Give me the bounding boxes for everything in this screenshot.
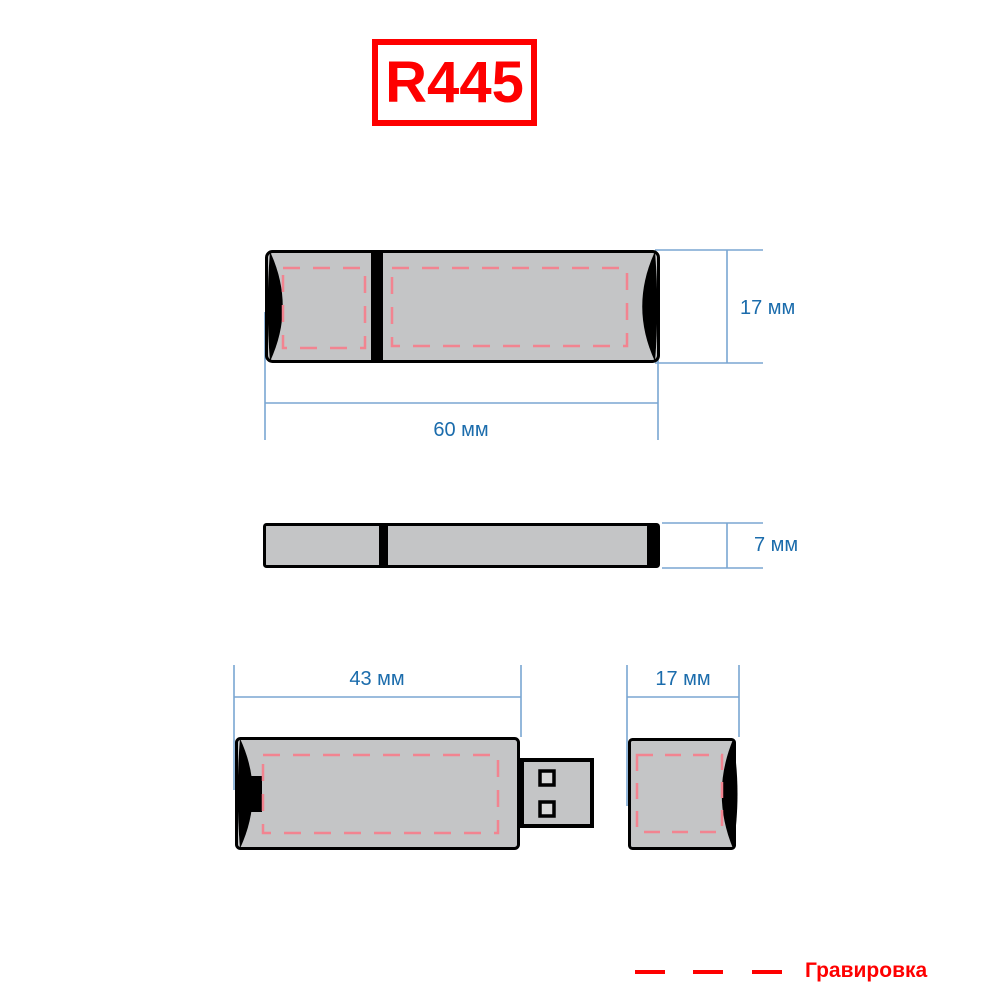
dim-label-top-height: 17 мм bbox=[740, 296, 795, 320]
dim-label-top-width: 60 мм bbox=[361, 418, 561, 442]
side-view-right-end bbox=[647, 524, 659, 568]
legend-dash-icon bbox=[752, 970, 782, 974]
usb-connector-plug bbox=[522, 760, 592, 826]
top-view-cap-seam bbox=[371, 250, 383, 363]
usb-contact-hole-top bbox=[540, 771, 554, 785]
side-view-cap-seam bbox=[379, 523, 388, 568]
dim-label-cap-width: 17 мм bbox=[583, 667, 783, 691]
dim-label-side-height: 7 мм bbox=[754, 533, 798, 557]
usb-contact-hole-bottom bbox=[540, 802, 554, 816]
legend-dash-icon bbox=[635, 970, 665, 974]
legend-engraving-label: Гравировка bbox=[805, 959, 927, 983]
side-view-drawing bbox=[263, 523, 660, 568]
dim-label-body-width: 43 мм bbox=[277, 667, 477, 691]
side-view-body bbox=[265, 525, 659, 567]
usb-connector-drawing bbox=[520, 758, 594, 828]
cap-view-drawing bbox=[628, 738, 740, 850]
legend-dash-icon bbox=[693, 970, 723, 974]
body-view-lanyard-notch bbox=[236, 776, 262, 812]
top-view-drawing bbox=[265, 250, 660, 363]
body-view-drawing bbox=[235, 737, 520, 850]
dimension-lines-overlay bbox=[0, 0, 1000, 1000]
drawing-canvas: R445 bbox=[0, 0, 1000, 1000]
